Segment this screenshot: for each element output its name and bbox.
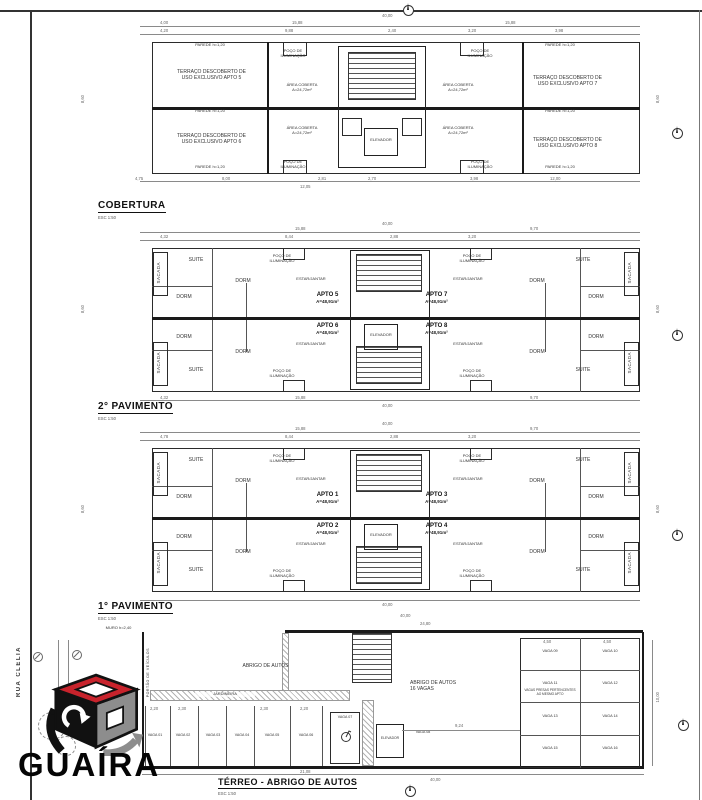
dim-label: 2,20 (300, 706, 308, 711)
apartment-name: APTO 6 (305, 323, 350, 330)
dim-label: 40,00 (382, 403, 392, 408)
dim-label: 4,00 (160, 20, 168, 25)
parking-spot-label: VAGA 14 (582, 714, 638, 718)
room-label-dorm: DORM (582, 495, 610, 501)
light-well-label: POÇO DE ILUMINAÇÃO (452, 454, 492, 463)
parking-divider (580, 638, 581, 768)
dim-label: 2,88 (390, 434, 398, 439)
room-label-suite: SUITE (178, 458, 214, 464)
partition (212, 320, 213, 392)
parking-spot-label: VAGA 07 (331, 715, 359, 719)
wall (522, 42, 524, 174)
room-label-dorm: DORM (170, 295, 198, 301)
room-label-dorm: DORM (229, 479, 257, 485)
room-label-suite: SUITE (565, 368, 601, 374)
balcony-label: SACADA (156, 262, 161, 284)
parking-divider (290, 706, 291, 766)
dim-label: 2,30 (178, 706, 186, 711)
room-label-dorm: DORM (523, 550, 551, 556)
plan-scale: ESC 1:50 (98, 616, 116, 621)
partition (545, 483, 546, 517)
dim-line (140, 34, 640, 35)
room-label-estar: ESTAR/JANTAR (287, 542, 335, 547)
apartment-name: APTO 4 (414, 523, 459, 530)
dim-label: 40,00 (430, 777, 440, 782)
room-label-dorm: DORM (523, 279, 551, 285)
dim-label: 8,60 (80, 305, 85, 313)
balcony-label: SACADA (627, 262, 632, 284)
room-label-suite: SUITE (178, 368, 214, 374)
room-label-dorm: DORM (523, 350, 551, 356)
parking-divider (198, 706, 199, 766)
apartment-area: A=48,91m² (305, 330, 350, 335)
room-label-suite: SUITE (565, 568, 601, 574)
parking-spot-label: VAGA 04 (230, 733, 254, 737)
parking-spot-label: VAGA 10 (582, 649, 638, 653)
room-label-dorm: DORM (229, 350, 257, 356)
dim-line (140, 600, 640, 601)
apartment-name: APTO 3 (414, 492, 459, 499)
parede-label: PAREDE h=1,20 (185, 109, 235, 114)
dim-line (140, 240, 640, 241)
room-label-dorm: DORM (170, 335, 198, 341)
frame-right-line (699, 10, 700, 800)
hatched-wall (362, 700, 374, 766)
dim-label: 8,60 (655, 305, 660, 313)
dim-label: 4,50 (603, 639, 611, 644)
parking-spot-label: VAGA 02 (171, 733, 195, 737)
dim-line (402, 730, 520, 731)
apartment-area: A=48,91m² (414, 299, 459, 304)
parking-spot-label: VAGA 03 (201, 733, 225, 737)
dim-label: 8,44 (285, 234, 293, 239)
light-well-label: POÇO DE ILUMINAÇÃO (460, 160, 500, 169)
light-well-label: POÇO DE ILUMINAÇÃO (273, 160, 313, 169)
dim-label: 8,60 (80, 505, 85, 513)
dim-label: 15,88 (292, 20, 302, 25)
stairs (348, 52, 416, 100)
room-label-estar: ESTAR/JANTAR (287, 477, 335, 482)
terrace-label: TERRAÇO DESCOBERTO DE USO EXCLUSIVO APTO… (164, 70, 259, 82)
room-label-estar: ESTAR/JANTAR (287, 342, 335, 347)
muro-label: MURO h=2,40 (96, 626, 141, 631)
balcony-label: SACADA (156, 462, 161, 484)
plan-scale: ESC 1:50 (98, 416, 116, 421)
elevator-label: ELEVADOR (366, 533, 396, 538)
light-well (283, 380, 305, 392)
dim-label: 9,70 (530, 226, 538, 231)
street-label: RUA CLELIA (16, 646, 22, 697)
light-well-label: POÇO DE ILUMINAÇÃO (262, 454, 302, 463)
room-label-suite: SUITE (565, 258, 601, 264)
dim-label: 40,00 (382, 13, 392, 18)
dim-label: 8,00 (222, 176, 230, 181)
covered-area-label: ÁREA COBERTA A=24,72m² (432, 83, 484, 92)
north-compass-icon (403, 5, 414, 16)
parede-label: PAREDE h=1,20 (185, 43, 235, 48)
north-compass-icon (678, 720, 689, 731)
dim-line (140, 26, 640, 27)
north-compass-icon (672, 128, 683, 139)
room-label-dorm: DORM (229, 550, 257, 556)
dim-line (140, 232, 640, 233)
stairs (352, 633, 392, 683)
dim-label: 12,00 (550, 176, 560, 181)
dim-label: 24,80 (420, 621, 430, 626)
parede-label: PAREDE h=1,20 (535, 165, 585, 170)
apartment-name: APTO 1 (305, 492, 350, 499)
room-label-estar: ESTAR/JANTAR (444, 342, 492, 347)
room-label-estar: ESTAR/JANTAR (444, 277, 492, 282)
room-label-dorm: DORM (170, 535, 198, 541)
elevator-label: ELEVADOR (366, 138, 396, 143)
partition (246, 283, 247, 317)
room-label-dorm: DORM (170, 495, 198, 501)
terrace-label: TERRAÇO DESCOBERTO DE USO EXCLUSIVO APTO… (164, 134, 259, 146)
partition (545, 283, 546, 317)
dim-label: 8,60 (80, 95, 85, 103)
parking-divider (520, 670, 640, 671)
parede-label: PAREDE h=1,20 (185, 165, 235, 170)
dim-label: 12,05 (300, 184, 310, 189)
parede-label: PAREDE h=1,20 (535, 43, 585, 48)
room-label-estar: ESTAR/JANTAR (287, 277, 335, 282)
dim-label: 8,60 (655, 505, 660, 513)
dim-label: 2,40 (388, 28, 396, 33)
dim-label: 2,88 (390, 234, 398, 239)
apartment-name: APTO 8 (414, 323, 459, 330)
apartment-name: APTO 7 (414, 292, 459, 299)
tree-icon (33, 652, 43, 662)
dim-label: 15,88 (295, 226, 305, 231)
bathroom (402, 118, 422, 136)
wall (642, 632, 644, 768)
parking-divider (322, 706, 323, 766)
partition (545, 320, 546, 352)
north-compass-icon (405, 786, 416, 797)
partition (545, 520, 546, 552)
garage-label: ABRIGO DE AUTOS (228, 664, 303, 670)
dim-label: 4,75 (135, 176, 143, 181)
light-well-label: POÇO DE ILUMINAÇÃO (262, 569, 302, 578)
light-well (470, 380, 492, 392)
dim-label: 4,32 (160, 234, 168, 239)
parking-divider (254, 706, 255, 766)
room-label-dorm: DORM (582, 295, 610, 301)
light-well-label: POÇO DE ILUMINAÇÃO (452, 254, 492, 263)
dim-label: 4,20 (160, 28, 168, 33)
dim-label: 8,60 (655, 95, 660, 103)
parking-divider (520, 702, 640, 703)
parking-divider (226, 706, 227, 766)
apartment-area: A=48,91m² (414, 499, 459, 504)
parking-note: VAGAS PRESAS PERTENCENTES AO MESMO APTO (520, 689, 580, 696)
balcony-label: SACADA (156, 552, 161, 574)
dim-label: 8,44 (285, 434, 293, 439)
parking-spot-label: VAGA 06 (294, 733, 318, 737)
plan-title-1pav: 1° PAVIMENTO (98, 601, 173, 614)
dim-line (142, 774, 644, 775)
dim-label: 4,50 (543, 639, 551, 644)
elevator-label: ELEVADOR (366, 333, 396, 338)
parking-spot-label: VAGA 13 (522, 714, 578, 718)
plan-title-cobertura: COBERTURA (98, 200, 166, 213)
terrace-label: TERRAÇO DESCOBERTO DE USO EXCLUSIVO APTO… (520, 138, 615, 150)
plan-scale: ESC 1:50 (218, 791, 236, 796)
room-label-dorm: DORM (582, 535, 610, 541)
dim-label: 4,78 (160, 434, 168, 439)
dim-label: 3,98 (470, 176, 478, 181)
dim-label: 15,88 (505, 20, 515, 25)
room-label-suite: SUITE (178, 258, 214, 264)
dim-line (652, 640, 653, 766)
room-label-dorm: DORM (582, 335, 610, 341)
plan-title-2pav: 2° PAVIMENTO (98, 401, 173, 414)
light-well-label: POÇO DE ILUMINAÇÃO (273, 49, 313, 58)
parking-spot-label: VAGA 12 (582, 681, 638, 685)
light-well-label: POÇO DE ILUMINAÇÃO (262, 254, 302, 263)
dim-line (140, 432, 640, 433)
apartment-area: A=48,91m² (305, 299, 350, 304)
partition (246, 320, 247, 352)
bathroom (342, 118, 362, 136)
stairs (356, 454, 422, 492)
balcony-label: SACADA (627, 352, 632, 374)
dim-label: 4,32 (160, 395, 168, 400)
room-label-estar: ESTAR/JANTAR (444, 477, 492, 482)
covered-area-label: ÁREA COBERTA A=24,72m² (276, 126, 328, 135)
dim-label: 3,20 (468, 28, 476, 33)
dim-line (140, 181, 640, 182)
partition (246, 483, 247, 517)
covered-area-label: ÁREA COBERTA A=24,72m² (276, 83, 328, 92)
dim-label: 40,00 (400, 613, 410, 618)
dim-label: 40,00 (382, 221, 392, 226)
dim-label: 9,70 (530, 395, 538, 400)
dim-label: 3,20 (468, 234, 476, 239)
elevator-shaft (376, 724, 404, 758)
dim-label: 15,88 (295, 395, 305, 400)
dim-label: 2,70 (368, 176, 376, 181)
parking-spot-label: VAGA 05 (260, 733, 284, 737)
dim-label: 9,70 (530, 426, 538, 431)
parking-spot-label: VAGA 11 (522, 681, 578, 685)
light-well-label: POÇO DE ILUMINAÇÃO (460, 49, 500, 58)
dim-label: 2,81 (318, 176, 326, 181)
guaira-wordmark: GUAÍRA (18, 746, 160, 785)
guaira-logo-cube (40, 670, 152, 756)
parking-spot-label: VAGA 16 (582, 746, 638, 750)
north-compass-icon (672, 530, 683, 541)
frame-left-line (30, 10, 32, 800)
planter-label: JARDINEIRA (195, 692, 255, 697)
tree-icon (72, 650, 82, 660)
light-well-label: POÇO DE ILUMINAÇÃO (262, 369, 302, 378)
apartment-name: APTO 5 (305, 292, 350, 299)
parking-divider (520, 735, 640, 736)
balcony-label: SACADA (627, 462, 632, 484)
frame-top-line (0, 10, 702, 12)
room-label-estar: ESTAR/JANTAR (444, 542, 492, 547)
light-well (283, 580, 305, 592)
motorcycle-icon (338, 728, 354, 744)
covered-area-label: ÁREA COBERTA A=24,72m² (432, 126, 484, 135)
dim-label: 9,88 (285, 28, 293, 33)
apartment-area: A=48,91m² (305, 499, 350, 504)
north-compass-icon (672, 330, 683, 341)
apartment-area: A=48,91m² (305, 530, 350, 535)
room-label-suite: SUITE (565, 458, 601, 464)
stairs (356, 346, 422, 384)
drawing-sheet: 40,00 4,00 15,88 15,88 4,20 9,88 2,40 3,… (0, 0, 702, 800)
elevator-label: ELEVADOR (376, 737, 404, 741)
partition (246, 520, 247, 552)
room-label-suite: SUITE (178, 568, 214, 574)
terrace-label: TERRAÇO DESCOBERTO DE USO EXCLUSIVO APTO… (520, 76, 615, 88)
dim-label: 3,98 (555, 28, 563, 33)
dim-label: 2,30 (260, 706, 268, 711)
room-label-dorm: DORM (229, 279, 257, 285)
light-well (470, 580, 492, 592)
apartment-name: APTO 2 (305, 523, 350, 530)
dim-line (140, 400, 640, 401)
plan-scale: ESC 1:50 (98, 215, 116, 220)
partition (580, 320, 581, 392)
apartment-area: A=48,91m² (414, 530, 459, 535)
parede-label: PAREDE h=1,20 (535, 109, 585, 114)
room-label-dorm: DORM (523, 479, 551, 485)
hatched-wall (282, 633, 289, 691)
dim-label: 9,24 (455, 723, 463, 728)
apartment-area: A=48,91m² (414, 330, 459, 335)
dim-label: 15,88 (295, 426, 305, 431)
parking-spot-label: VAGA 09 (522, 649, 578, 653)
plan-title-terreo: TÉRREO - ABRIGO DE AUTOS (218, 777, 357, 789)
wall (267, 42, 269, 174)
partition (580, 520, 581, 592)
dim-line (140, 440, 640, 441)
partition (212, 520, 213, 592)
light-well-label: POÇO DE ILUMINAÇÃO (452, 569, 492, 578)
stairs (356, 546, 422, 584)
dim-label: 40,00 (382, 602, 392, 607)
light-well-label: POÇO DE ILUMINAÇÃO (452, 369, 492, 378)
dim-label: 40,00 (382, 421, 392, 426)
balcony-label: SACADA (156, 352, 161, 374)
parking-spot-label: VAGA 15 (522, 746, 578, 750)
wall (285, 630, 643, 633)
dim-label: 10,00 (655, 692, 660, 702)
dim-label: 3,20 (468, 434, 476, 439)
dim-label: 21,08 (300, 769, 310, 774)
garage-16vagas-label: ABRIGO DE AUTOS 16 VAGAS (410, 681, 468, 693)
stairs (356, 254, 422, 292)
balcony-label: SACADA (627, 552, 632, 574)
